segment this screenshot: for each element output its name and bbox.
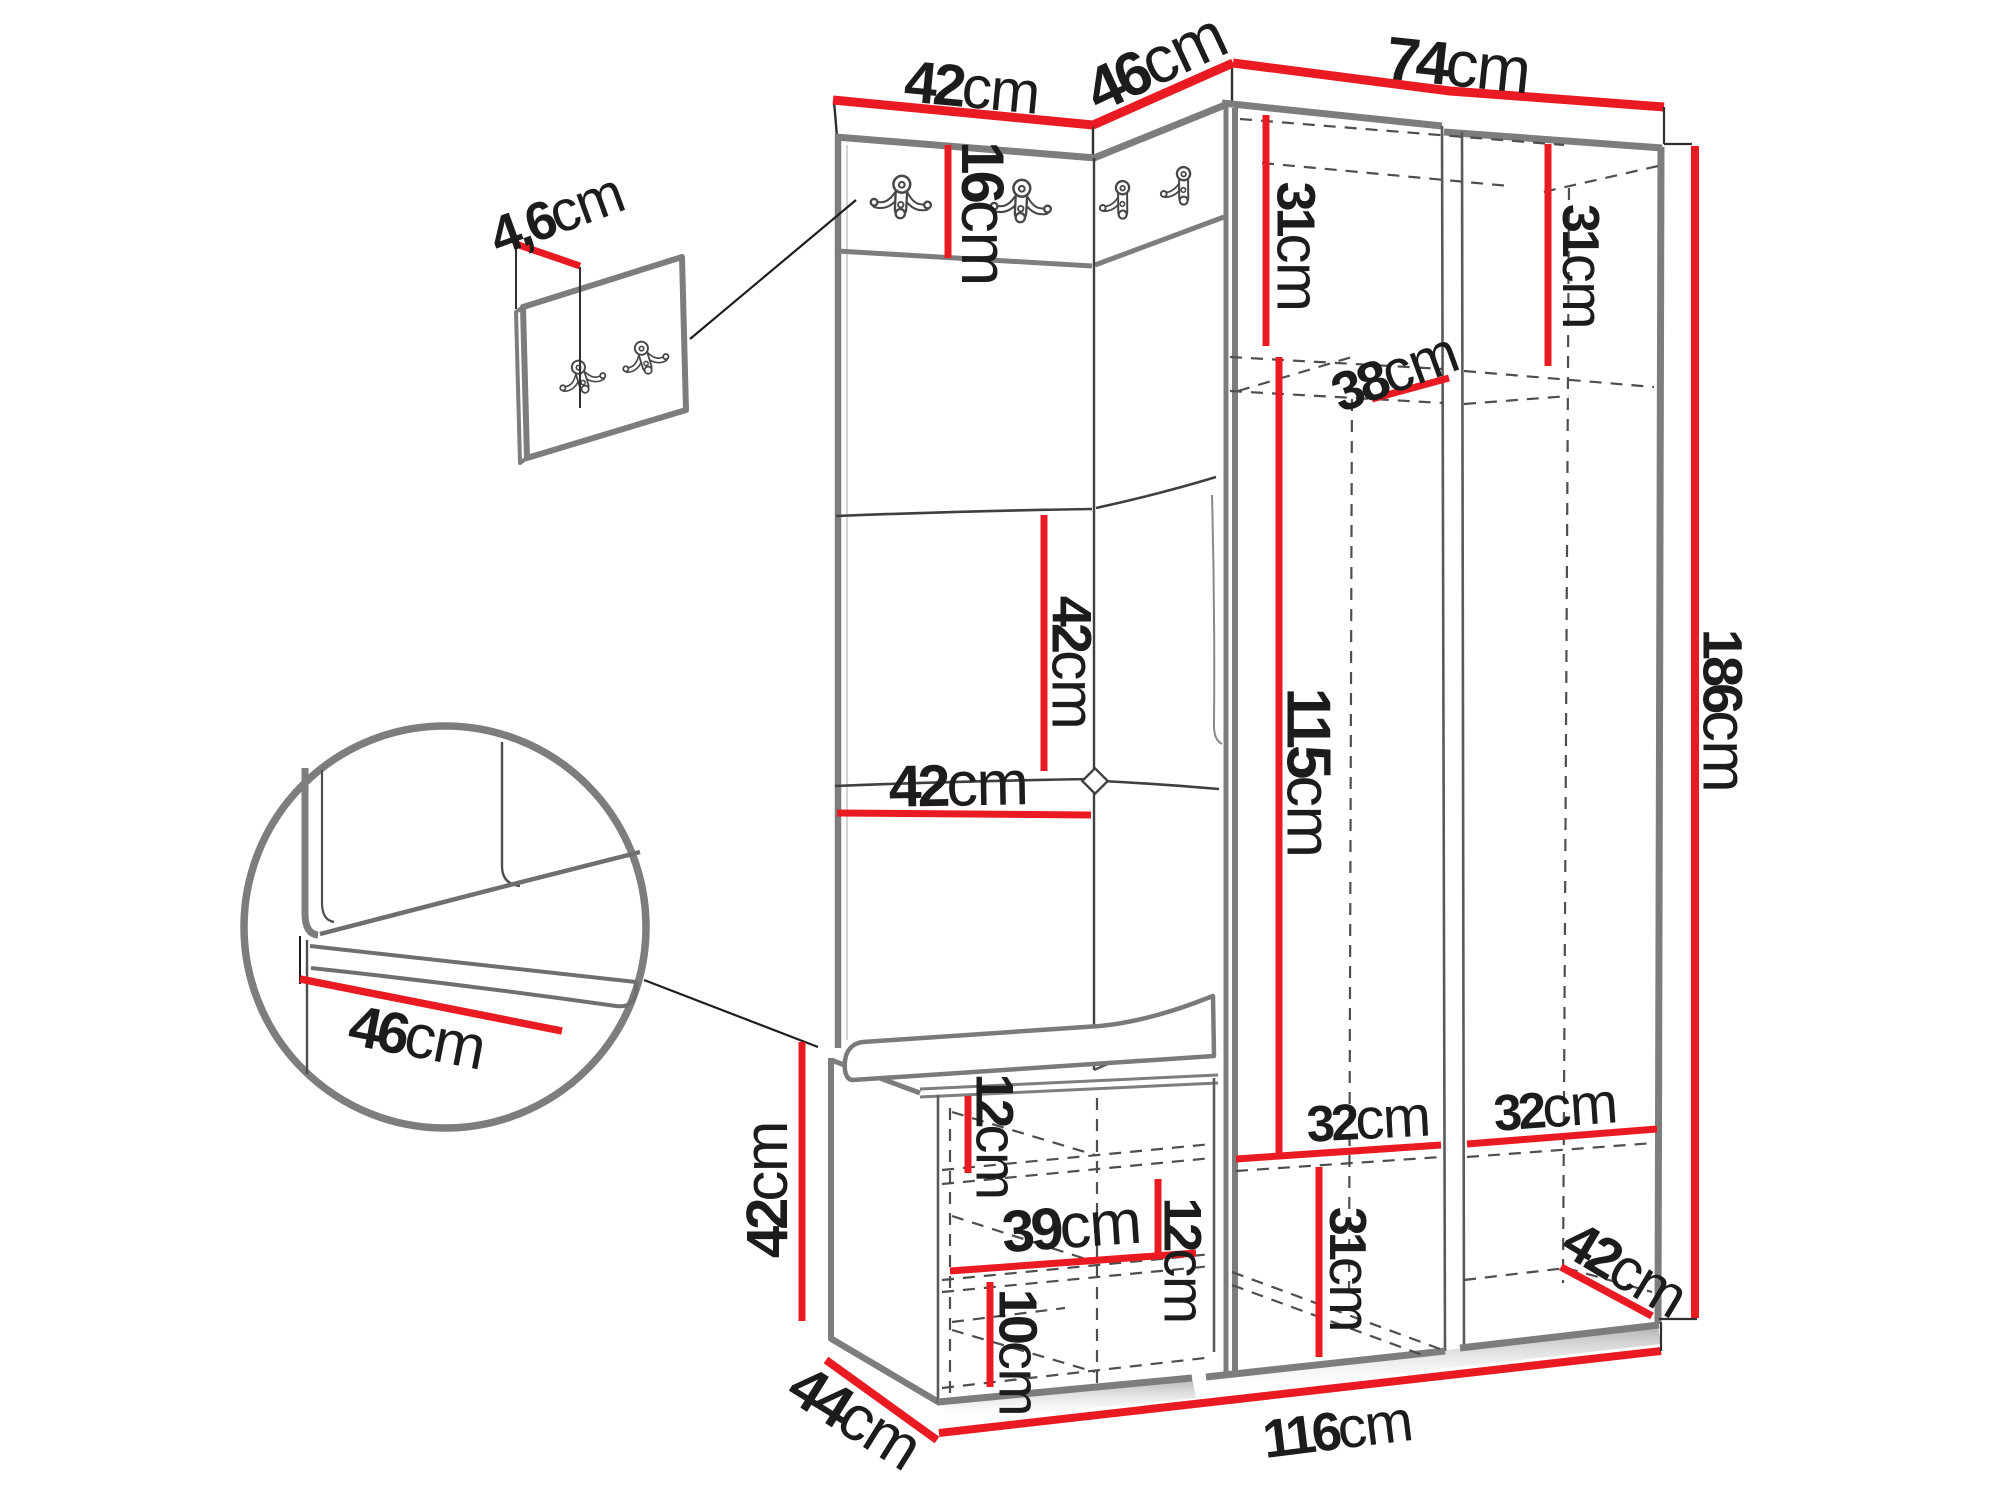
- svg-text:42cm: 42cm: [732, 1122, 801, 1258]
- svg-text:31cm: 31cm: [1264, 181, 1331, 310]
- svg-text:115cm: 115cm: [1273, 687, 1343, 856]
- svg-text:32cm: 32cm: [1305, 1083, 1431, 1154]
- svg-text:31cm: 31cm: [1550, 204, 1615, 328]
- svg-text:12cm: 12cm: [964, 1073, 1029, 1198]
- svg-text:16cm: 16cm: [948, 141, 1022, 285]
- svg-text:39cm: 39cm: [999, 1187, 1142, 1266]
- svg-text:10cm: 10cm: [986, 1289, 1051, 1415]
- svg-text:42cm: 42cm: [888, 748, 1028, 820]
- svg-text:31cm: 31cm: [1317, 1207, 1382, 1331]
- svg-text:12cm: 12cm: [1152, 1197, 1217, 1322]
- svg-text:42cm: 42cm: [1040, 596, 1108, 729]
- svg-text:42cm: 42cm: [902, 47, 1042, 127]
- svg-text:186cm: 186cm: [1690, 629, 1760, 791]
